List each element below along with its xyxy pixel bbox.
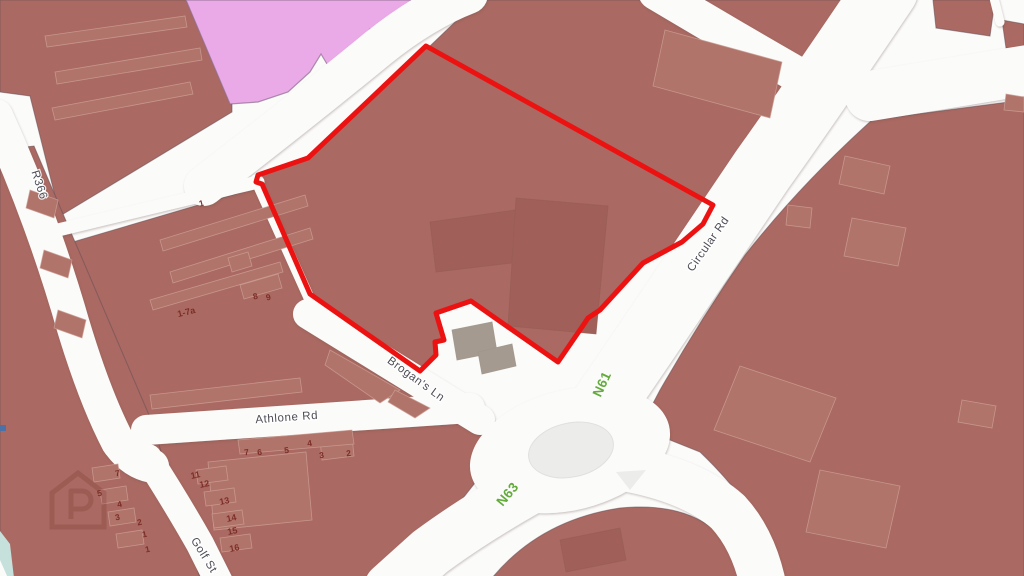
road-east-branch [870,70,1024,96]
map-canvas[interactable]: R366Athlone RdBrogan's LnCircular RdGolf… [0,0,1024,576]
house-number: 13 [218,495,230,507]
blue-feature-dash [0,425,6,431]
house-number: 14 [225,512,237,524]
block-topright-2 [1002,20,1024,50]
house-number: 12 [198,478,210,490]
map-viewport[interactable]: R366Athlone RdBrogan's LnCircular RdGolf… [0,0,1024,576]
block-topright-1 [933,0,995,36]
house-number: 15 [226,525,238,537]
road-corner-gap [994,0,1000,22]
house-number: 16 [228,542,240,554]
